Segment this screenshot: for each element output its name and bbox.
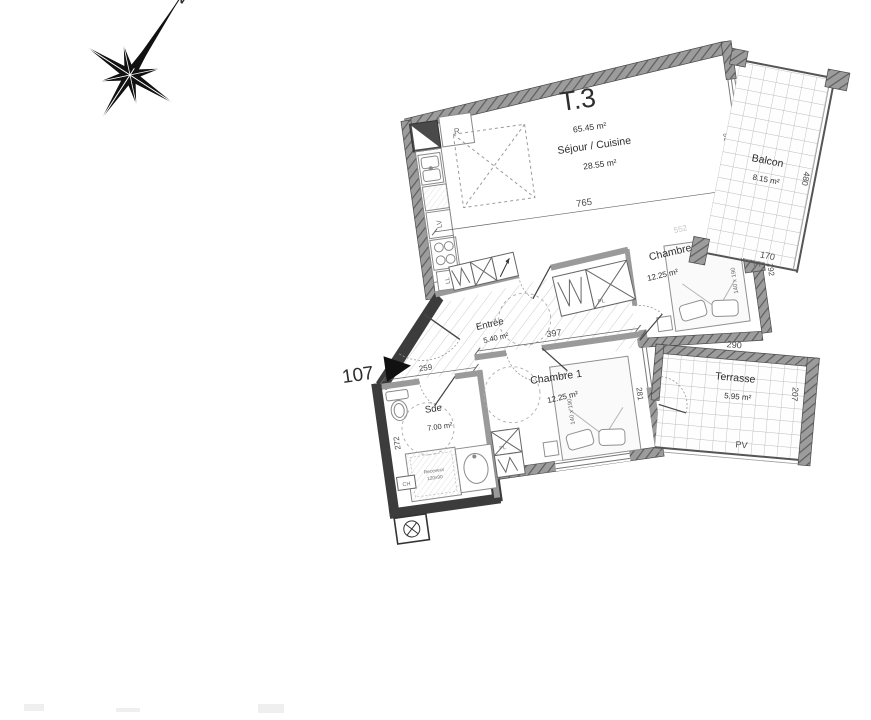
lot-number: 107 [341,363,375,388]
compass-north-label: N [170,0,192,8]
dim-chambre1-height-label: 281 [634,387,645,402]
sejour-area: 28.55 m² [583,157,618,172]
dishwasher-label: LV [436,219,444,228]
sde-name: Sde [424,403,442,416]
dim-sde-height-label: 272 [392,435,403,450]
toilet [386,389,412,422]
dim-chambre1-width-label: 397 [546,327,562,339]
bottom-edge-artifacts [24,704,284,713]
sde-area: 7.00 m² [427,420,454,433]
washbasin [455,444,497,493]
boiler-label: CH [402,481,411,488]
balcon-wall-stub-tl [729,48,748,67]
sejour-name: Séjour / Cuisine [557,135,632,157]
dim-sejour-wall-label: 552 [673,223,689,235]
terrasse-floor [655,354,807,459]
dim-terrasse-width-label: 290 [726,339,742,350]
dim-sejour-width-label: 765 [576,197,593,210]
balcon-block: Balcon 8.15 m² 480 170 [689,48,850,285]
dim-sejour-width [431,186,737,235]
closet-chambre1-label: PL [499,445,507,452]
window-door-chambre1-terrasse [642,348,652,388]
glazing-label: PV [735,439,748,450]
dim-sde-width-label: 259 [418,362,433,373]
kitchen-sink [418,152,444,185]
nightstand-chambre1 [543,441,559,457]
floorplan-drawing: N [0,0,871,720]
unit-title: T.3 [558,82,598,117]
terrasse-block: 290 Terrasse 5.95 m² 207 PV [647,333,821,466]
shower [405,447,461,501]
kitchen-unit-hatched [422,184,449,211]
turning-circle-chambre1 [480,363,543,426]
balcon-wall-stub-tr [825,69,850,91]
unit-area: 65.45 m² [572,120,607,135]
closet-chambre1 [491,428,525,477]
dim-terrasse-height-label: 207 [790,387,801,402]
compass-rose: N [58,0,230,147]
wall-right-stub-bottom [753,267,772,334]
compass-north-needle [131,0,183,70]
duct-box [394,514,429,544]
floorplan-page: N [0,0,871,720]
